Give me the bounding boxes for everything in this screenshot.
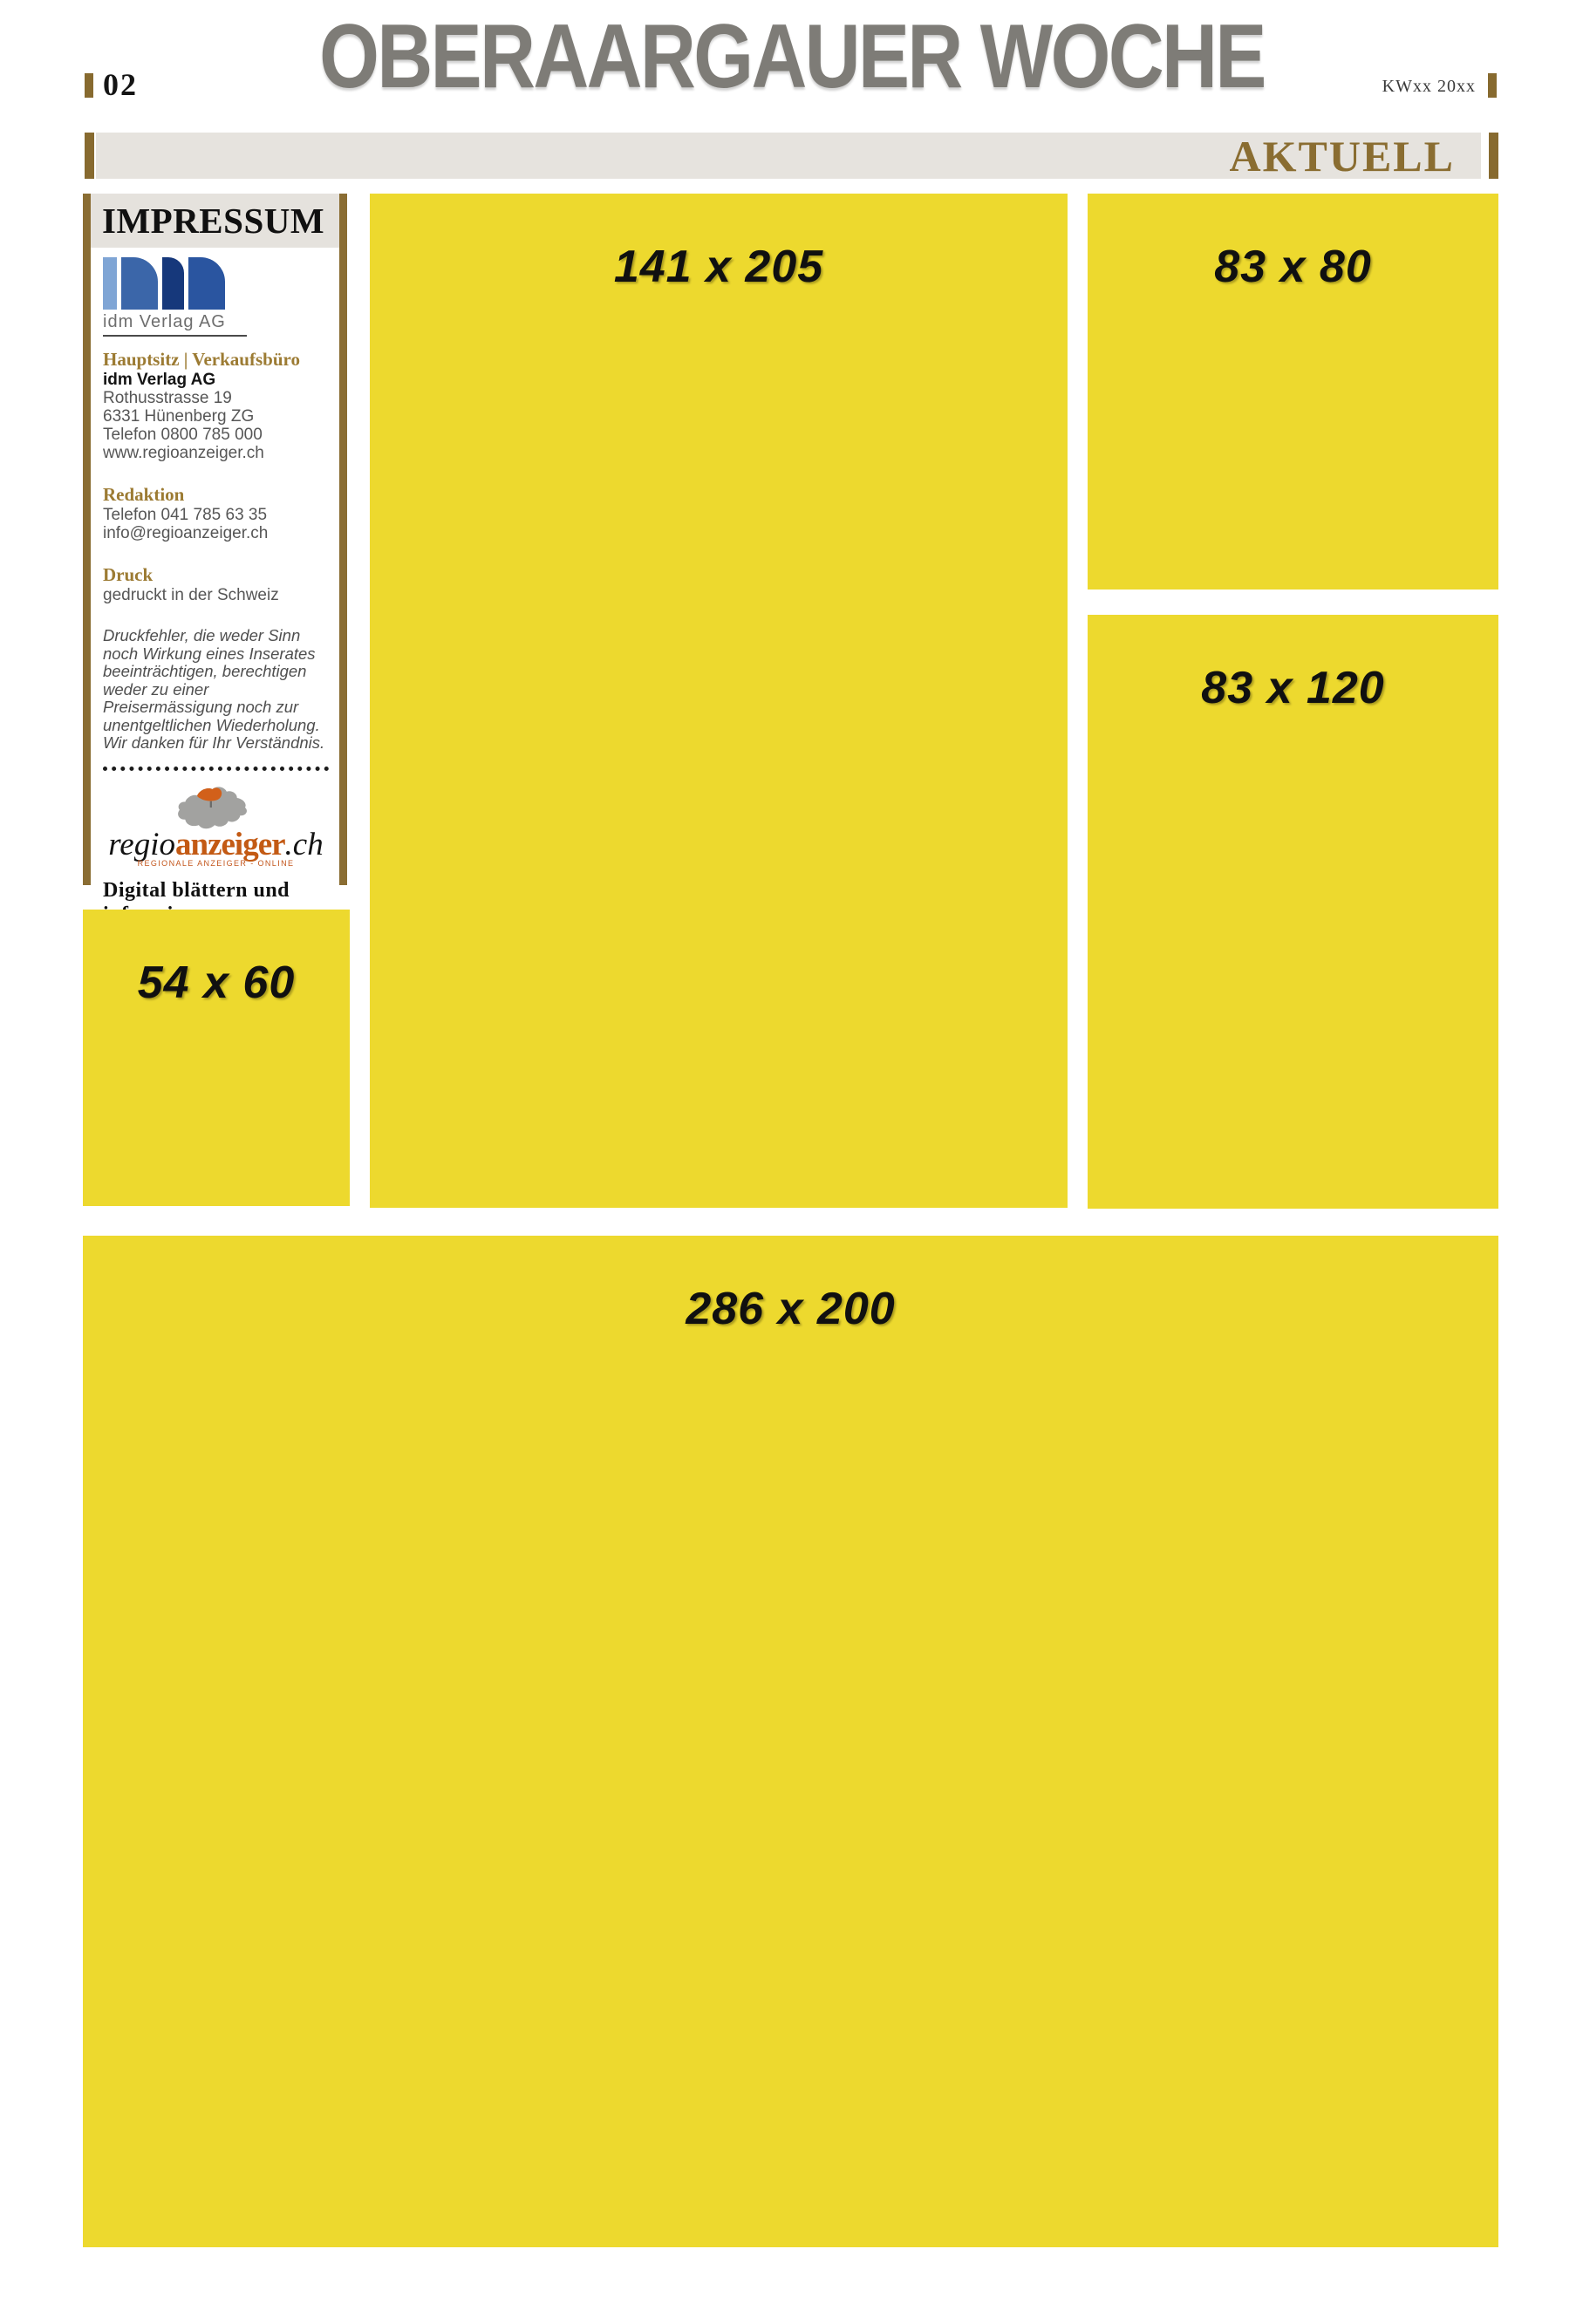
header-left-tick xyxy=(85,73,93,98)
brand-regio: regio xyxy=(108,827,175,862)
disclaimer-text: Druckfehler, die weder Sinn noch Wirkung… xyxy=(103,627,329,753)
masthead-title: OBERAARGAUER WOCHE xyxy=(319,11,1265,102)
section-band: AKTUELL xyxy=(96,133,1481,179)
company-website: www.regioanzeiger.ch xyxy=(103,444,329,462)
ad-size-label-141x205: 141 x 205 xyxy=(370,241,1068,293)
druck-heading: Druck xyxy=(103,563,329,586)
ad-size-label-54x60: 54 x 60 xyxy=(83,957,350,1009)
issue-code: KWxx 20xx xyxy=(1343,77,1476,97)
druck-section: Druck gedruckt in der Schweiz xyxy=(103,563,329,604)
section-label: AKTUELL xyxy=(1229,132,1455,181)
ad-slot-83x120: 83 x 120 xyxy=(1088,615,1498,1209)
company-name: idm Verlag AG xyxy=(103,371,329,389)
company-phone: Telefon 0800 785 000 xyxy=(103,426,329,444)
ad-slot-54x60: 54 x 60 xyxy=(83,910,350,1206)
ad-size-label-83x80: 83 x 80 xyxy=(1088,241,1498,293)
hauptsitz-heading: Hauptsitz | Verkaufsbüro xyxy=(103,348,329,371)
impressum-body: idm Verlag AG Hauptsitz | Verkaufsbüro i… xyxy=(91,248,339,927)
redaktion-section: Redaktion Telefon 041 785 63 35 info@reg… xyxy=(103,483,329,542)
impressum-title: IMPRESSUM xyxy=(91,194,339,248)
idm-logo-shape-d xyxy=(121,257,158,310)
redaktion-phone: Telefon 041 785 63 35 xyxy=(103,506,329,524)
idm-logo-shape-m2 xyxy=(188,257,225,310)
band-right-tick xyxy=(1489,133,1498,179)
idm-logo-bar xyxy=(103,257,117,310)
band-left-tick xyxy=(85,133,94,179)
company-city: 6331 Hünenberg ZG xyxy=(103,407,329,426)
idm-logo-caption: idm Verlag AG xyxy=(103,312,247,337)
brand-anzeiger: anzeiger xyxy=(175,827,285,862)
idm-logo-shape-m1 xyxy=(162,257,184,310)
impressum-box: IMPRESSUM idm Verlag AG Hauptsitz | Verk… xyxy=(83,194,347,885)
newspaper-page: 02 OBERAARGAUER WOCHE KWxx 20xx AKTUELL … xyxy=(0,0,1583,2324)
idm-verlag-logo-icon xyxy=(103,257,329,310)
header-right-tick xyxy=(1488,73,1497,98)
ad-slot-83x80: 83 x 80 xyxy=(1088,194,1498,590)
ad-size-label-286x200: 286 x 200 xyxy=(83,1283,1498,1335)
regioanzeiger-logo: regioanzeiger.ch REGIONALE ANZEIGER - ON… xyxy=(103,780,329,868)
hauptsitz-section: Hauptsitz | Verkaufsbüro idm Verlag AG R… xyxy=(103,348,329,462)
regio-brand-wordmark: regioanzeiger.ch xyxy=(103,831,329,859)
dotted-divider xyxy=(103,767,329,771)
redaktion-heading: Redaktion xyxy=(103,483,329,506)
druck-line: gedruckt in der Schweiz xyxy=(103,586,329,604)
redaktion-email: info@regioanzeiger.ch xyxy=(103,524,329,542)
ad-slot-141x205: 141 x 205 xyxy=(370,194,1068,1208)
page-number: 02 xyxy=(103,66,138,103)
brand-tld: .ch xyxy=(285,827,324,862)
ad-size-label-83x120: 83 x 120 xyxy=(1088,662,1498,714)
company-street: Rothusstrasse 19 xyxy=(103,389,329,407)
ad-slot-286x200: 286 x 200 xyxy=(83,1236,1498,2247)
